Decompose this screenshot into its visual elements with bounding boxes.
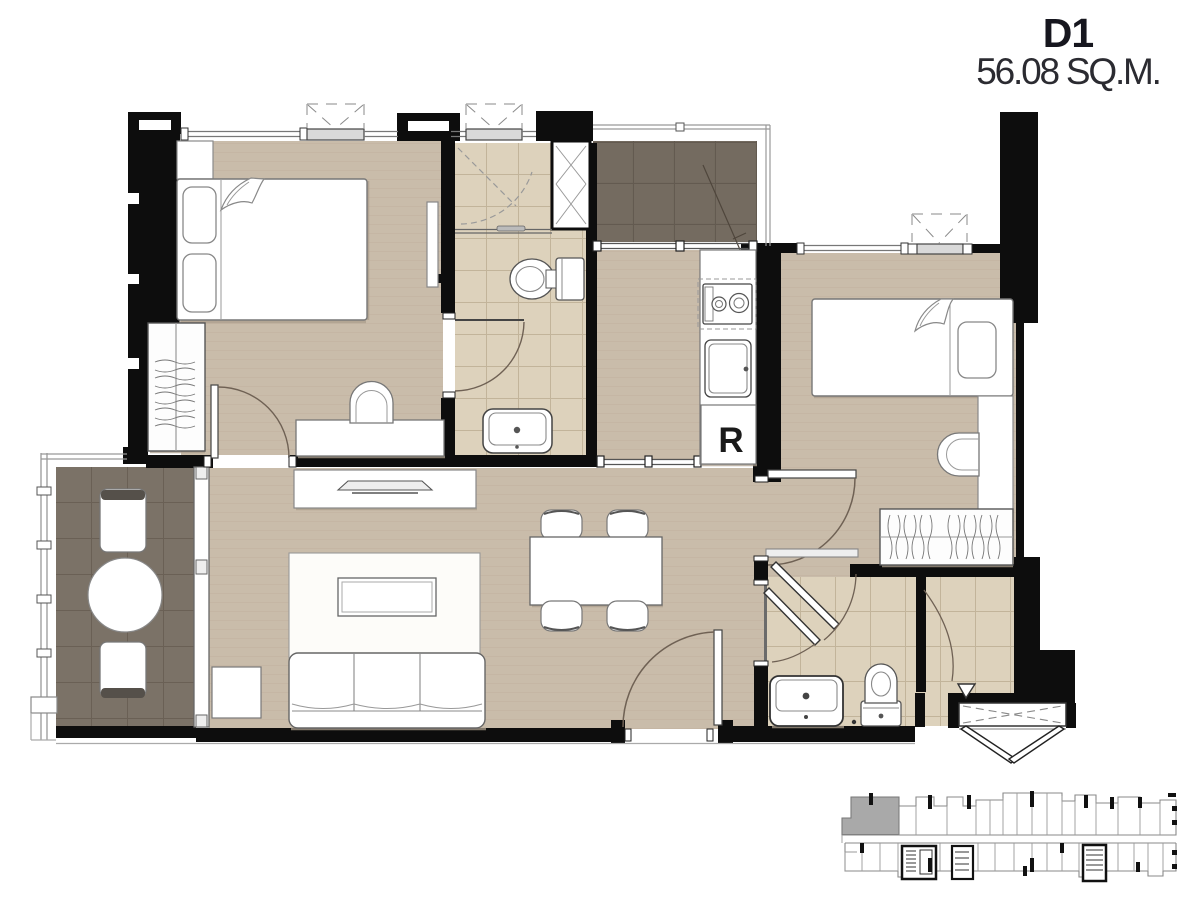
svg-text:D1: D1	[1043, 10, 1094, 56]
svg-text:R: R	[718, 421, 743, 460]
svg-text:56.08 SQ.M.: 56.08 SQ.M.	[976, 51, 1160, 92]
